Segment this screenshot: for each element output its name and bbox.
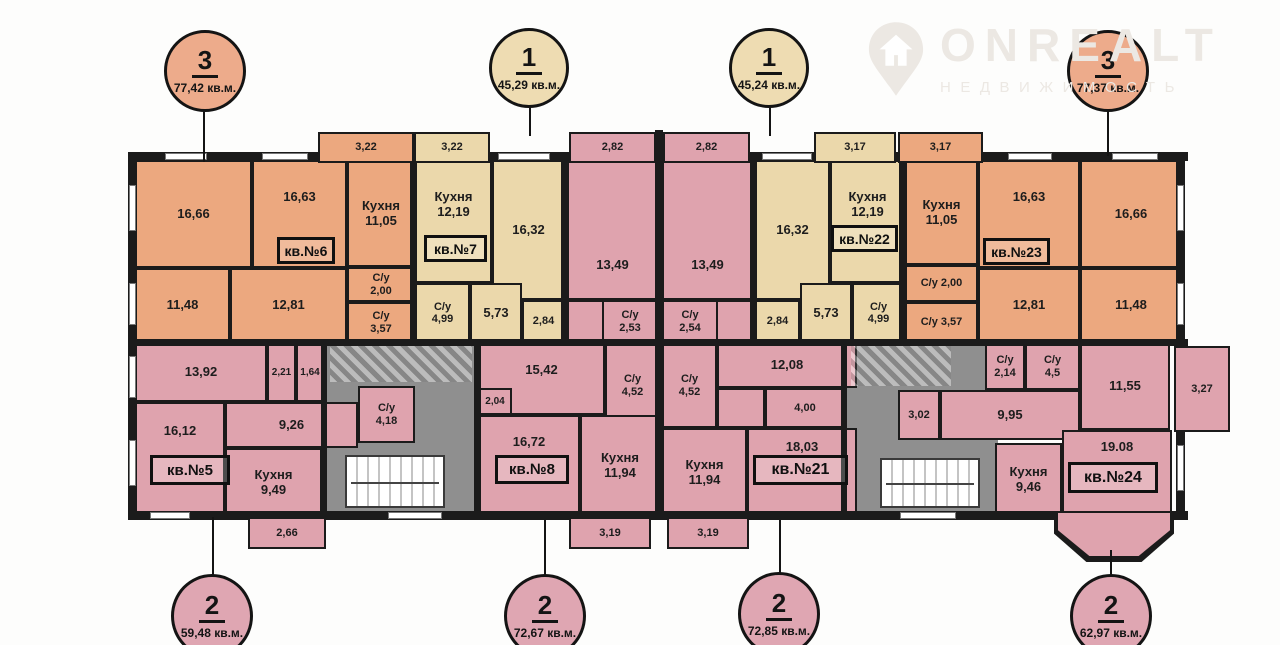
window <box>129 185 136 231</box>
apt7-hall-2-84: 2,84 <box>522 300 565 343</box>
unit-badge-2room-3: 272,85 кв.м. <box>738 572 820 645</box>
apt23-kitchen: Кухня11,05 <box>905 160 978 265</box>
apt21-balcony-top: 2,82 <box>663 132 750 163</box>
wall <box>410 152 417 346</box>
apt8-balcony-bottom: 3,19 <box>569 517 651 549</box>
apt24-bathroom-2: С/у4,5 <box>1025 343 1080 390</box>
unit-badge-2room-4: 262,97 кв.м. <box>1070 574 1152 645</box>
apt6-room-16-66: 16,66 <box>135 160 252 268</box>
apt7-bathroom: С/у4,99 <box>415 283 470 343</box>
window <box>1177 185 1184 231</box>
apt21-hall-upper <box>716 300 753 343</box>
window <box>262 153 308 160</box>
apt5-number-plate: кв.№5 <box>150 455 230 485</box>
wall <box>899 152 906 346</box>
unit-badge-3room-right: 377,37 кв.м. <box>1067 30 1149 112</box>
window <box>129 356 136 398</box>
apt6-bathroom-1: С/у2,00 <box>347 267 415 302</box>
apt5-closet-2-21: 2,21 <box>267 343 296 402</box>
apt21-room-13-49: 13,49 <box>662 160 753 300</box>
apt21-bathroom-2: С/у4,52 <box>662 343 717 428</box>
window <box>762 153 812 160</box>
apt7-hall-5-73: 5,73 <box>470 283 522 343</box>
apt7-room-16-32: 16,32 <box>492 160 565 300</box>
apt24-hall-9-95: 9,95 <box>940 390 1080 440</box>
badge-stem <box>212 517 214 577</box>
apt6-kitchen: Кухня11,05 <box>347 160 415 267</box>
badge-stem <box>779 520 781 575</box>
apt24-number-plate: кв.№24 <box>1068 462 1158 493</box>
apt22-number-plate: кв.№22 <box>831 225 898 252</box>
apt6-room-11-48: 11,48 <box>135 268 230 343</box>
apt5-bathroom: С/у4,18 <box>358 386 415 443</box>
window <box>129 440 136 486</box>
apt8-closet-2-04: 2,04 <box>478 388 512 415</box>
apt5-hall-9-26: 9,26 <box>225 402 358 448</box>
unit-badge-1room-left: 145,29 кв.м. <box>489 28 569 108</box>
window <box>1112 153 1158 160</box>
apt7-balcony: 3,22 <box>414 132 490 163</box>
wall <box>474 339 481 520</box>
apt22-bathroom: С/у4,99 <box>852 283 905 343</box>
entrance-canopy <box>330 346 472 382</box>
apt22-hall-5-73: 5,73 <box>800 283 852 343</box>
apt21-room-4-00: 4,00 <box>765 388 845 428</box>
window <box>150 512 190 519</box>
apt7-number-plate: кв.№7 <box>424 235 487 262</box>
apt23-room-16-66: 16,66 <box>1080 160 1182 268</box>
apt23-number-plate: кв.№23 <box>983 238 1050 265</box>
brand-pin-icon <box>866 20 926 98</box>
window <box>498 153 550 160</box>
apt8-bathroom-1: С/у2,53 <box>602 300 658 343</box>
window <box>1177 283 1184 325</box>
unit-badge-2room-1: 259,48 кв.м. <box>171 574 253 645</box>
badge-stem <box>529 106 531 136</box>
window <box>129 283 136 325</box>
apt23-room-11-48: 11,48 <box>1080 268 1182 343</box>
apt24-hall-3-02: 3,02 <box>898 390 940 440</box>
apt21-number-plate: кв.№21 <box>753 455 848 485</box>
apt6-number-plate: кв.№6 <box>277 237 335 264</box>
staircase-right <box>880 458 980 508</box>
apt24-balcony-right: 3,27 <box>1174 346 1230 432</box>
apt22-kitchen: Кухня12,19 <box>830 160 905 283</box>
apt21-kitchen: Кухня11,94 <box>662 428 747 517</box>
apt8-number-plate: кв.№8 <box>495 455 569 484</box>
apt23-room-12-81: 12,81 <box>978 268 1080 343</box>
window <box>165 153 207 160</box>
badge-stem <box>544 520 546 577</box>
apt22-room-16-32: 16,32 <box>755 160 830 300</box>
apt8-kitchen: Кухня11,94 <box>580 415 660 517</box>
apt21-balcony-bottom: 3,19 <box>667 517 749 549</box>
apt23-bathroom-1: С/у 2,00 <box>905 265 978 302</box>
unit-badge-1room-right: 145,24 кв.м. <box>729 28 809 108</box>
wall <box>841 339 847 520</box>
apt6-balcony: 3,22 <box>318 132 414 163</box>
apt5-balcony: 2,66 <box>248 517 326 549</box>
badge-stem <box>203 110 205 162</box>
wall <box>321 339 327 520</box>
apt5-closet-1-64: 1,64 <box>296 343 324 402</box>
entrance-door <box>388 512 442 519</box>
apt8-hall-upper <box>567 300 604 343</box>
entrance-canopy <box>851 346 951 386</box>
apt24-kitchen: Кухня9,46 <box>995 443 1062 517</box>
staircase-left <box>345 455 445 508</box>
badge-stem <box>769 106 771 136</box>
apt24-room-11-55: 11,55 <box>1080 343 1170 430</box>
apt6-room-12-81: 12,81 <box>230 268 347 343</box>
apt24-bathroom-1: С/у2,14 <box>985 343 1025 390</box>
apt21-hall-12-08: 12,08 <box>717 343 857 388</box>
wall <box>655 130 663 518</box>
badge-stem <box>1107 110 1109 156</box>
unit-badge-2room-2: 272,67 кв.м. <box>504 574 586 645</box>
apt8-balcony-top: 2,82 <box>569 132 656 163</box>
unit-badge-3room-left: 377,42 кв.м. <box>164 30 246 112</box>
badge-stem <box>1110 550 1112 577</box>
apt21-hall-lower <box>717 388 765 428</box>
window <box>1177 445 1184 491</box>
wall <box>561 152 568 346</box>
apt21-bathroom-1: С/у2,54 <box>662 300 718 343</box>
apt22-hall-2-84: 2,84 <box>755 300 800 343</box>
floorplan-canvas: 16,66 16,63 Кухня11,05 11,48 12,81 С/у2,… <box>0 0 1280 645</box>
apt22-balcony: 3,17 <box>814 132 896 163</box>
apt5-kitchen: Кухня9,49 <box>225 448 322 517</box>
entrance-door <box>900 512 956 519</box>
apt8-room-13-49: 13,49 <box>567 160 658 300</box>
apt7-kitchen: Кухня12,19 <box>415 160 492 283</box>
apt6-bathroom-2: С/у3,57 <box>347 302 415 343</box>
wall <box>750 152 757 346</box>
apt5-room-13-92: 13,92 <box>135 343 267 402</box>
apt23-bathroom-2: С/у 3,57 <box>905 302 978 343</box>
window <box>1008 153 1052 160</box>
watermark: ONREALT НЕДВИЖИМОСТЬ <box>866 20 1222 98</box>
apt23-balcony: 3,17 <box>898 132 983 163</box>
